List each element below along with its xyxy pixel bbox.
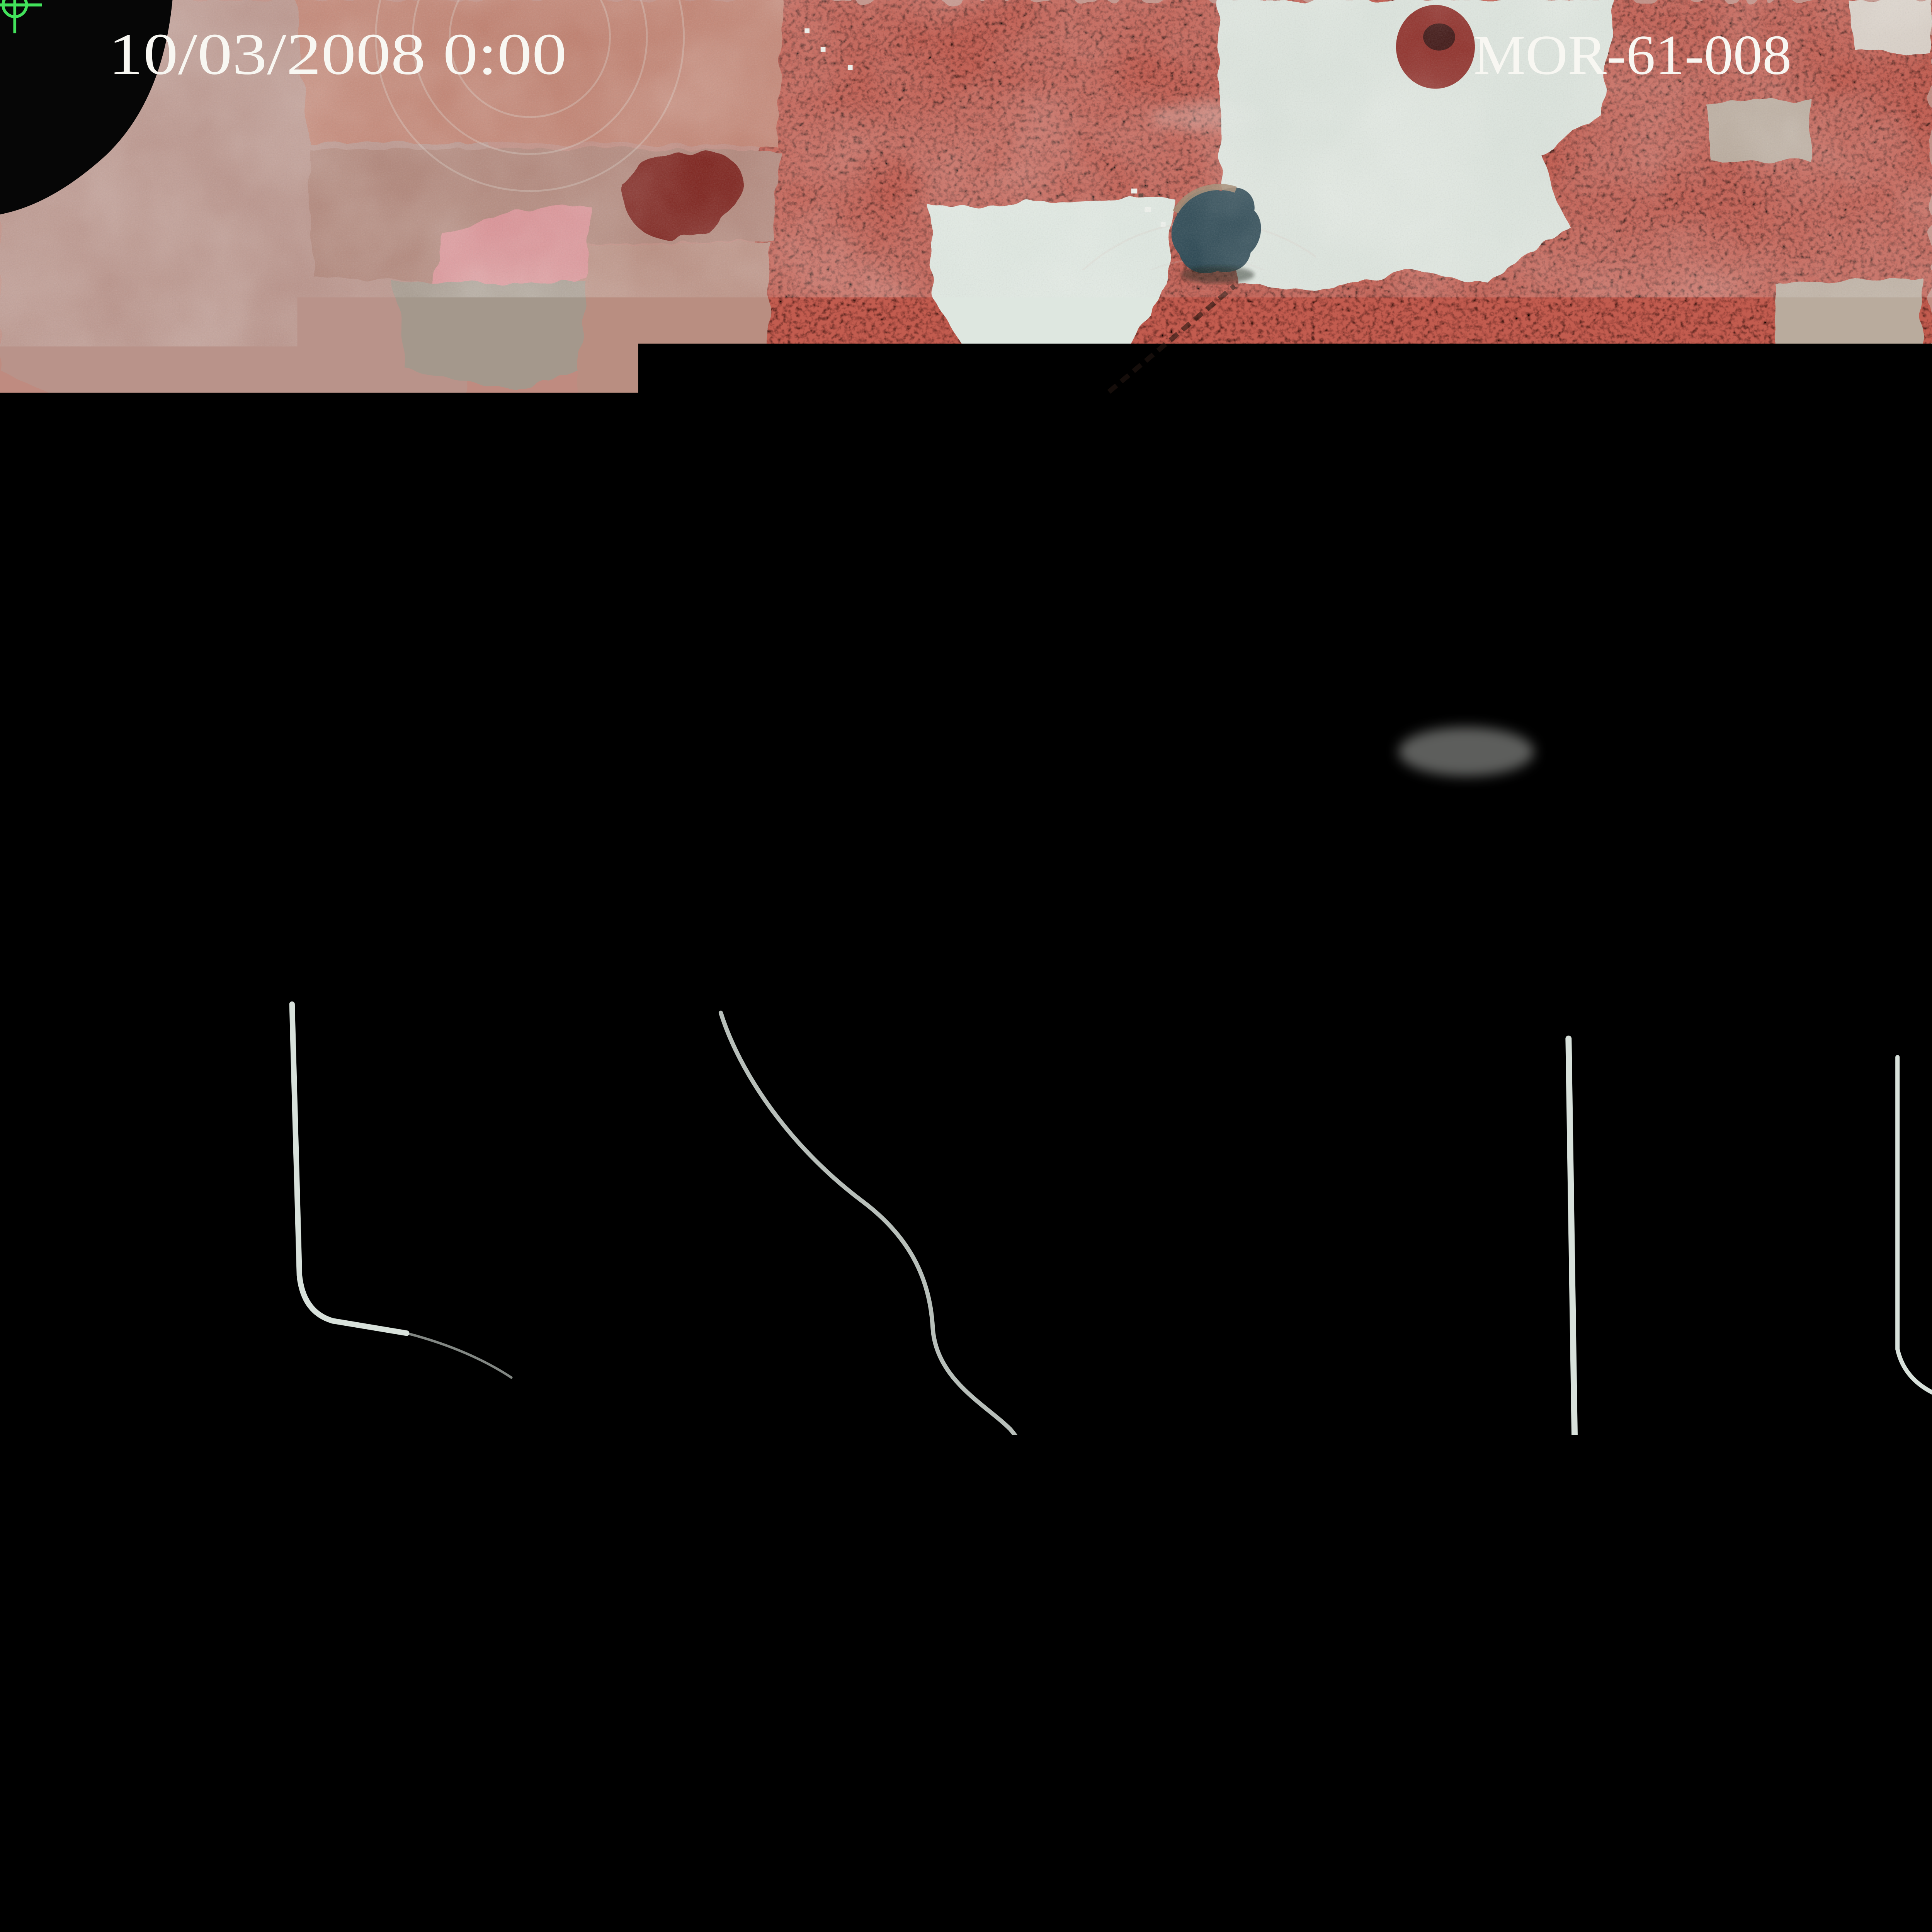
fiducial-index-bars [112,1729,131,1740]
aerial-photo-frame: 31 [0,0,1932,1932]
film-grain-overlay [0,0,1932,1932]
photo-id: MOR-61-008 [1474,23,1792,86]
film-edge-bottom [0,1921,1932,1932]
aerial-photo: 31 [0,0,1932,1932]
datetime-stamp: 10/03/2008 0:00 [109,22,567,87]
